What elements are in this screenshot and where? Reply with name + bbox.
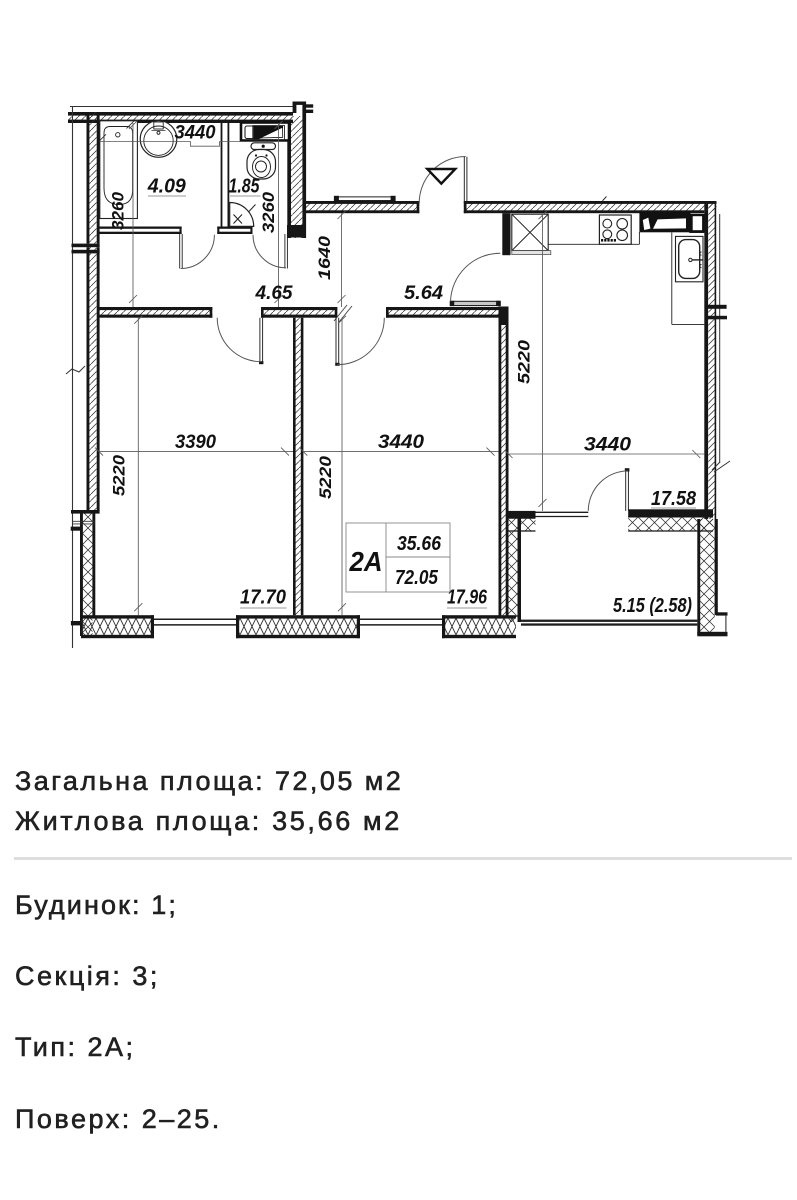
svg-text:5.64: 5.64 xyxy=(404,283,443,304)
svg-text:4.65: 4.65 xyxy=(254,283,292,304)
svg-text:3390: 3390 xyxy=(175,432,216,453)
svg-text:3440: 3440 xyxy=(584,435,631,456)
svg-text:5.15 (2.58): 5.15 (2.58) xyxy=(613,595,692,617)
svg-text:3260: 3260 xyxy=(259,191,278,233)
svg-text:5220: 5220 xyxy=(110,454,129,496)
svg-text:5220: 5220 xyxy=(316,455,335,499)
svg-text:17.96: 17.96 xyxy=(447,587,488,609)
svg-text:72.05: 72.05 xyxy=(395,567,439,589)
svg-text:4.09: 4.09 xyxy=(147,176,187,198)
svg-text:3440: 3440 xyxy=(378,432,424,453)
svg-text:1.85: 1.85 xyxy=(229,176,261,198)
svg-text:2A: 2A xyxy=(349,546,383,577)
svg-text:5220: 5220 xyxy=(515,339,534,384)
svg-text:17.70: 17.70 xyxy=(240,587,286,609)
svg-text:3440: 3440 xyxy=(175,123,216,144)
svg-text:1640: 1640 xyxy=(315,235,334,280)
svg-text:17.58: 17.58 xyxy=(651,488,697,510)
svg-text:3260: 3260 xyxy=(109,191,128,230)
svg-text:35.66: 35.66 xyxy=(397,533,442,555)
